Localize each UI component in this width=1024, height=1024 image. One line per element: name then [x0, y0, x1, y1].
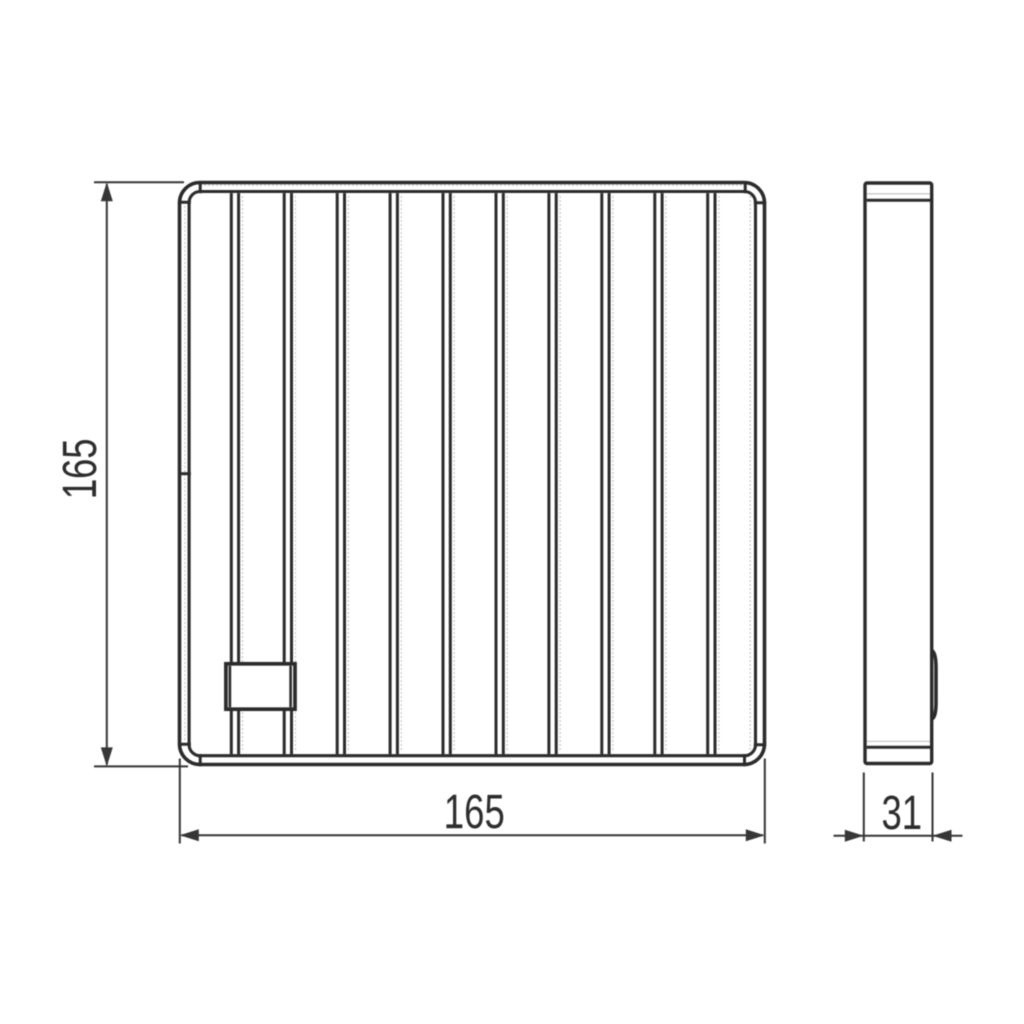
svg-text:31: 31 [882, 786, 923, 840]
svg-text:165: 165 [53, 438, 107, 499]
svg-text:165: 165 [444, 785, 505, 839]
